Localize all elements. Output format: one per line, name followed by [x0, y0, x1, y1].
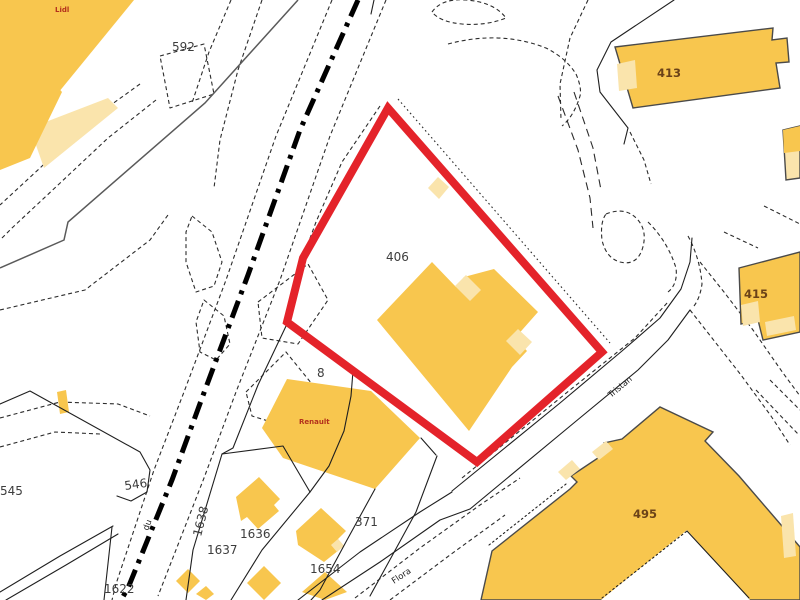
parcel-label-371: 371: [355, 515, 378, 529]
buildings-layer: [0, 0, 800, 600]
business-label-renault: Renault: [299, 418, 330, 426]
building-413-pale: [617, 60, 637, 91]
building-small-b: [247, 566, 281, 600]
building-renault: [262, 379, 420, 489]
map-canvas[interactable]: 592 545 546 406 8 371 1636 1637 1638 165…: [0, 0, 800, 600]
business-label-lidl: Lidl: [55, 6, 69, 14]
parcel-label-8: 8: [317, 366, 325, 380]
building-415-pale-a: [741, 301, 760, 326]
parcel-label-406: 406: [386, 250, 409, 264]
parcel-label-415: 415: [744, 287, 768, 301]
building-small-strip: [57, 390, 69, 414]
parcel-label-1622: 1622: [104, 582, 135, 596]
parcel-label-1654: 1654: [310, 562, 341, 576]
building-1654: [296, 508, 346, 562]
building-1636: [236, 477, 280, 529]
cadastral-map-view: 592 545 546 406 8 371 1636 1637 1638 165…: [0, 0, 800, 600]
building-small-d: [302, 572, 347, 600]
building-right-edge-top: [783, 126, 800, 153]
parcel-label-495: 495: [633, 507, 657, 521]
street-label-tristan: Tristan: [606, 375, 635, 401]
parcel-label-1637: 1637: [207, 543, 238, 557]
parcel-label-546: 546: [123, 476, 148, 493]
parcel-label-592: 592: [172, 40, 195, 54]
street-label-flora: Flora: [390, 566, 413, 586]
building-406-shed: [428, 177, 449, 199]
parcel-label-1638: 1638: [190, 505, 211, 538]
parcel-label-413: 413: [657, 66, 681, 80]
parcel-label-1636: 1636: [240, 527, 271, 541]
building-small-c: [196, 586, 214, 600]
building-413: [615, 28, 789, 108]
parcel-label-545: 545: [0, 484, 23, 498]
